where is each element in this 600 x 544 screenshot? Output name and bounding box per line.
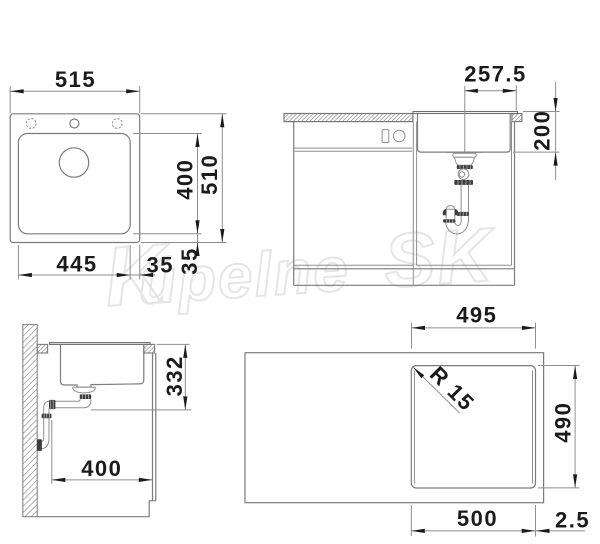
svg-text:515: 515	[55, 67, 96, 92]
svg-text:445: 445	[56, 252, 97, 277]
svg-text:500: 500	[457, 506, 498, 531]
svg-text:332: 332	[162, 355, 187, 396]
svg-text:35: 35	[147, 253, 174, 278]
svg-text:510: 510	[197, 154, 222, 195]
svg-text:257.5: 257.5	[464, 62, 527, 87]
svg-text:35: 35	[177, 247, 202, 274]
svg-text:2.5: 2.5	[555, 508, 590, 533]
svg-text:400: 400	[173, 159, 198, 200]
svg-text:400: 400	[81, 456, 122, 481]
svg-text:490: 490	[550, 402, 575, 443]
svg-text:495: 495	[456, 303, 497, 328]
svg-text:200: 200	[530, 110, 555, 151]
